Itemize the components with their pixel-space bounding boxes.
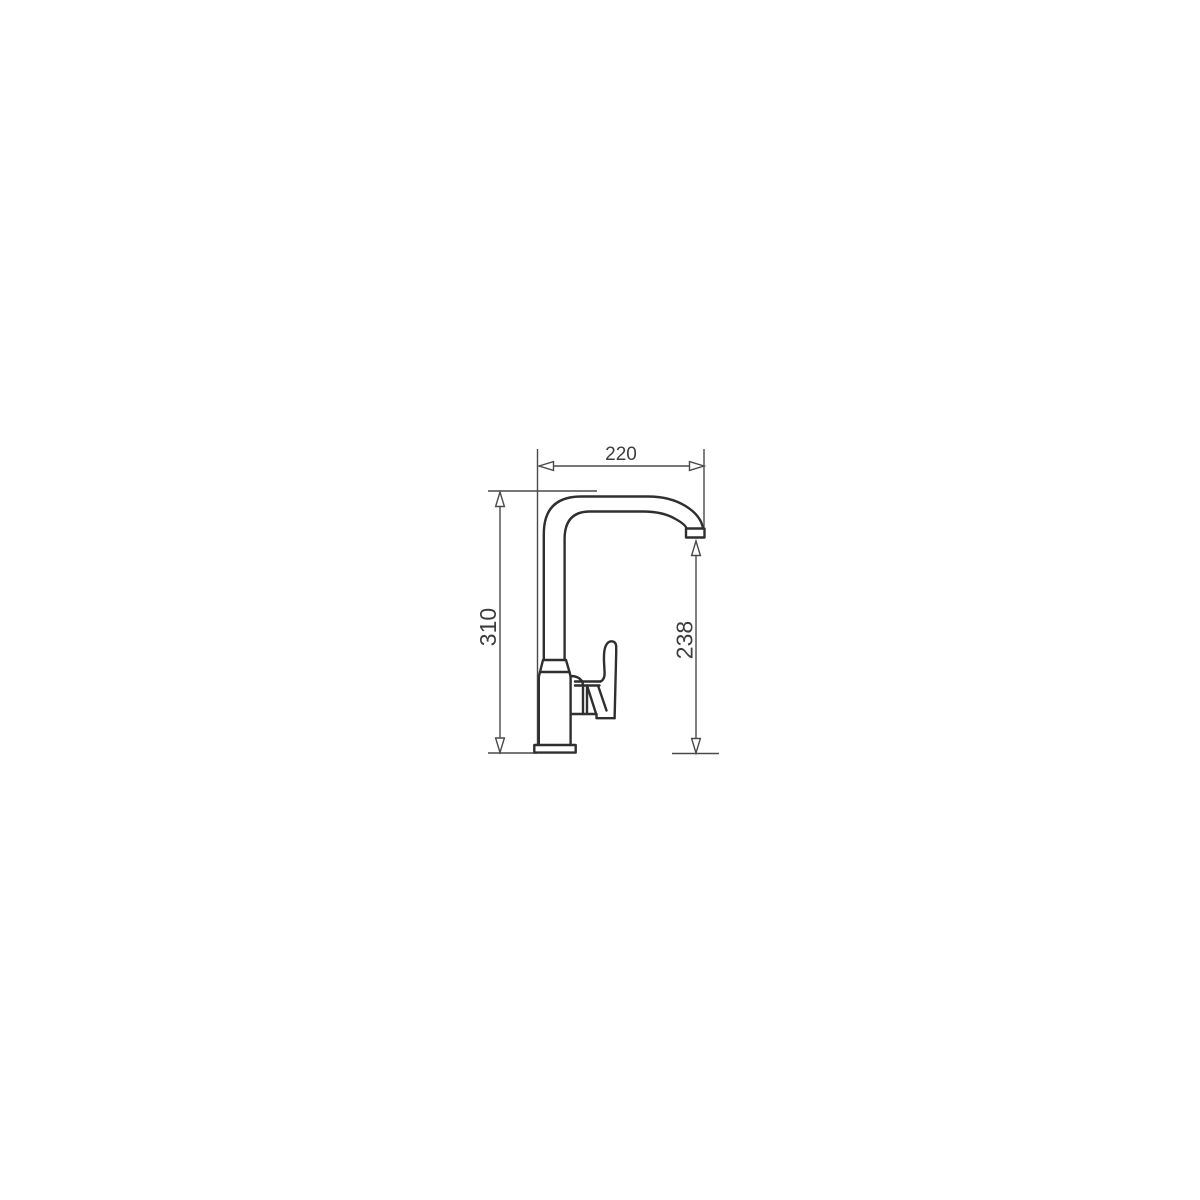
faucet-spout-inner	[565, 512, 687, 661]
faucet-collar	[540, 660, 570, 672]
faucet-housing-bottom	[571, 714, 615, 718]
faucet-body-right	[570, 672, 571, 745]
arrowhead-down-total-icon	[496, 738, 505, 753]
faucet-body-left	[539, 672, 540, 745]
dimension-label-total-height: 310	[475, 608, 501, 646]
faucet-aerator	[686, 529, 705, 538]
arrowhead-up-total-icon	[496, 492, 505, 507]
arrowhead-down-spout-icon	[692, 739, 701, 754]
faucet-lever-handle	[601, 641, 617, 718]
faucet-technical-drawing: 220 310 238	[0, 0, 1200, 1200]
arrowheads	[496, 462, 704, 753]
dimension-label-spout-reach: 220	[605, 444, 637, 465]
faucet-housing-seams	[575, 682, 607, 715]
faucet-base-flange	[534, 745, 575, 753]
extension-lines	[488, 449, 719, 754]
dimension-lines	[500, 466, 704, 753]
dimension-labels: 220 310 238	[475, 444, 698, 659]
arrowhead-right-icon	[690, 462, 705, 471]
arrowhead-left-icon	[539, 462, 554, 471]
drawing-canvas: 220 310 238	[0, 0, 1200, 1200]
dimension-label-spout-height: 238	[672, 621, 698, 659]
arrowhead-up-spout-icon	[692, 541, 701, 556]
